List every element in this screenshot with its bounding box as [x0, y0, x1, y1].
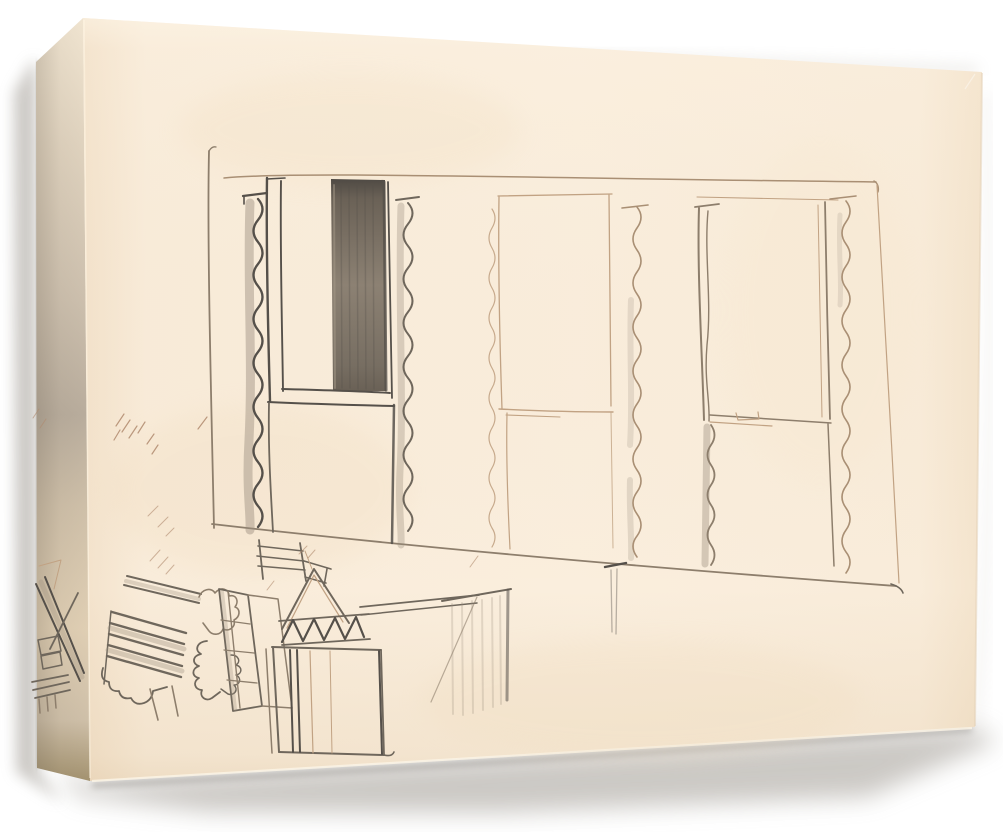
- canvas-print-mockup: [0, 0, 1003, 832]
- artwork-scene: [0, 0, 1003, 832]
